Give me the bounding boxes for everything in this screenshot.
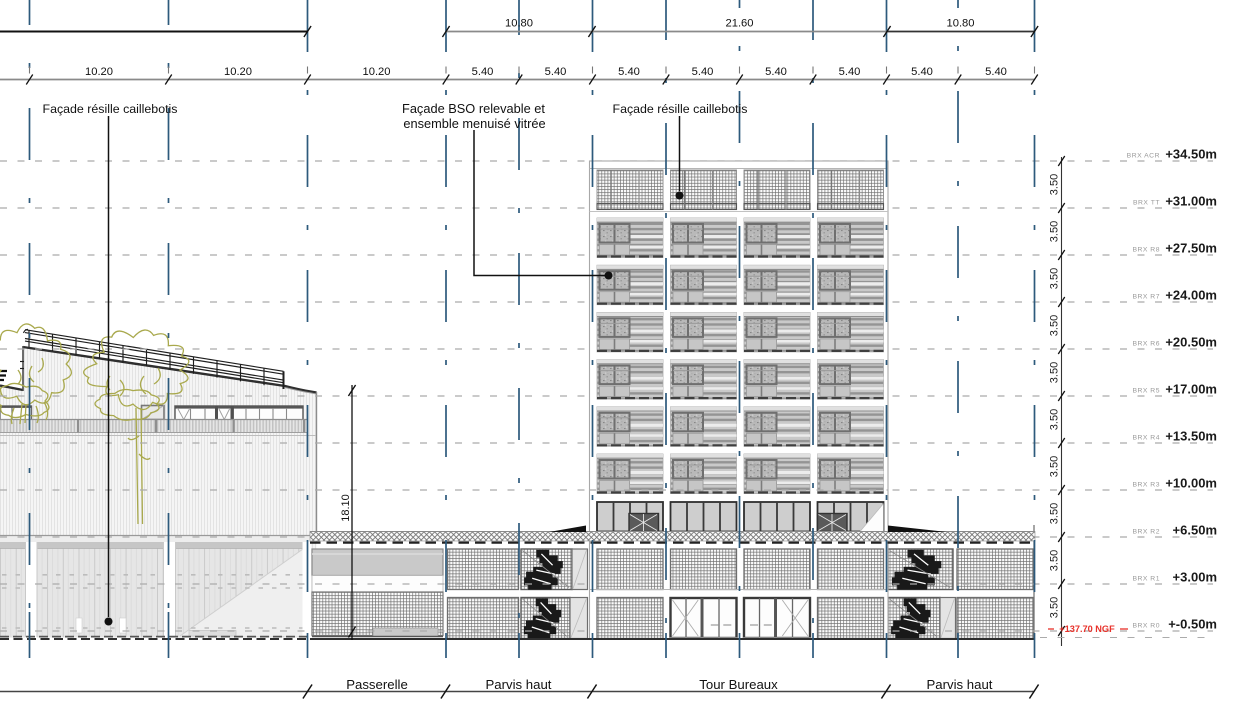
svg-text:BRX R2: BRX R2: [1132, 529, 1160, 536]
svg-text:10.80: 10.80: [505, 18, 533, 30]
svg-text:Parvis haut: Parvis haut: [927, 677, 993, 692]
svg-text:+20.50m: +20.50m: [1165, 335, 1217, 350]
svg-text:+137.70 NGF: +137.70 NGF: [1059, 624, 1115, 634]
svg-text:3.50: 3.50: [1049, 268, 1061, 289]
svg-text:10.80: 10.80: [947, 18, 975, 30]
svg-text:ensemble menuisé vitrée: ensemble menuisé vitrée: [403, 116, 545, 131]
svg-text:10.20: 10.20: [224, 66, 252, 78]
svg-text:BRX R0: BRX R0: [1132, 623, 1160, 630]
svg-text:18.10: 18.10: [340, 494, 352, 522]
svg-text:3.50: 3.50: [1049, 174, 1061, 195]
svg-text:+17.00m: +17.00m: [1165, 382, 1217, 397]
svg-text:3.50: 3.50: [1049, 315, 1061, 336]
svg-text:3.50: 3.50: [1049, 409, 1061, 430]
svg-text:10.20: 10.20: [85, 66, 113, 78]
svg-text:+-0.50m: +-0.50m: [1168, 617, 1217, 632]
svg-text:5.40: 5.40: [545, 66, 567, 78]
svg-text:BRX R5: BRX R5: [1132, 388, 1160, 395]
svg-text:BRX ACR: BRX ACR: [1127, 153, 1160, 160]
svg-text:+3.00m: +3.00m: [1173, 570, 1217, 585]
svg-text:Parvis haut: Parvis haut: [486, 677, 552, 692]
svg-text:BRX R1: BRX R1: [1132, 576, 1160, 583]
svg-text:BRX R7: BRX R7: [1132, 294, 1160, 301]
svg-text:+34.50m: +34.50m: [1165, 147, 1217, 162]
svg-text:+6.50m: +6.50m: [1173, 523, 1217, 538]
svg-text:5.40: 5.40: [472, 66, 494, 78]
svg-text:5.40: 5.40: [985, 66, 1007, 78]
svg-text:3.50: 3.50: [1049, 503, 1061, 524]
svg-text:+13.50m: +13.50m: [1165, 429, 1217, 444]
svg-text:3.50: 3.50: [1049, 456, 1061, 477]
svg-text:+27.50m: +27.50m: [1165, 241, 1217, 256]
svg-text:3.50: 3.50: [1049, 550, 1061, 571]
svg-text:Façade résille caillebotis: Façade résille caillebotis: [613, 102, 748, 116]
svg-text:3.50: 3.50: [1049, 362, 1061, 383]
svg-text:+24.00m: +24.00m: [1165, 288, 1217, 303]
svg-text:Façade résille caillebotis: Façade résille caillebotis: [43, 102, 178, 116]
svg-text:Tour Bureaux: Tour Bureaux: [699, 677, 778, 692]
svg-text:BRX R3: BRX R3: [1132, 482, 1160, 489]
svg-text:5.40: 5.40: [765, 66, 787, 78]
svg-text:BRX R6: BRX R6: [1132, 341, 1160, 348]
svg-text:BRX TT: BRX TT: [1133, 200, 1160, 207]
svg-text:Façade BSO relevable et: Façade BSO relevable et: [402, 101, 545, 116]
svg-text:+31.00m: +31.00m: [1165, 194, 1217, 209]
svg-text:+10.00m: +10.00m: [1165, 476, 1217, 491]
svg-text:3.50: 3.50: [1049, 221, 1061, 242]
svg-text:5.40: 5.40: [839, 66, 861, 78]
svg-text:5.40: 5.40: [911, 66, 933, 78]
svg-text:BRX R4: BRX R4: [1132, 435, 1160, 442]
svg-text:3.50: 3.50: [1049, 597, 1061, 618]
svg-text:21.60: 21.60: [726, 18, 754, 30]
svg-text:10.20: 10.20: [363, 66, 391, 78]
svg-text:BRX R8: BRX R8: [1132, 247, 1160, 254]
svg-text:Passerelle: Passerelle: [346, 677, 408, 692]
svg-text:5.40: 5.40: [618, 66, 640, 78]
svg-text:5.40: 5.40: [692, 66, 714, 78]
